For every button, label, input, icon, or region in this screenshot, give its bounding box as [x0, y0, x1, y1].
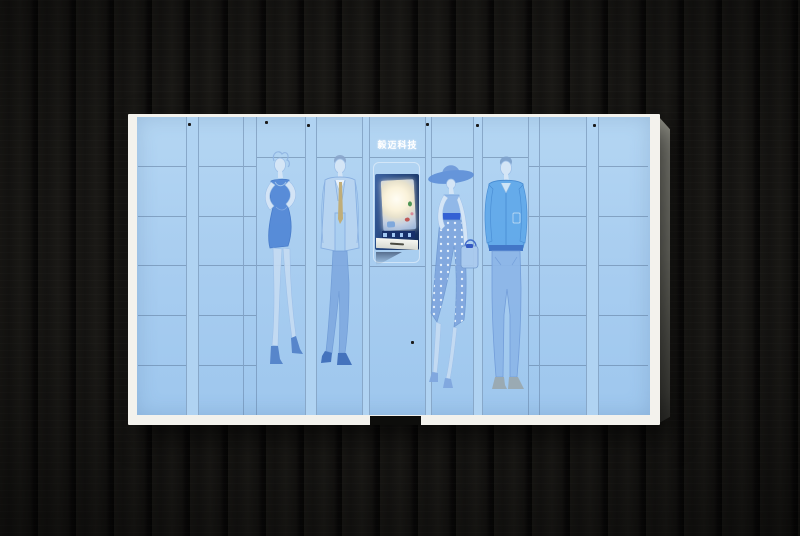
locker-door	[529, 217, 539, 267]
locker-door	[599, 167, 648, 217]
locker-door	[599, 366, 648, 415]
cabinet-face: 毅迈科技	[137, 117, 650, 415]
locker-cabinet: 毅迈科技	[128, 114, 660, 425]
lock-dot	[188, 123, 191, 126]
figure-door-column	[432, 117, 473, 415]
locker-door	[599, 266, 648, 316]
brand-label: 毅迈科技	[377, 138, 417, 151]
screen-content-speck	[405, 217, 410, 221]
figure-door-column	[317, 117, 362, 415]
cabinet-side-panel	[659, 117, 670, 423]
locker-column	[138, 117, 186, 415]
locker-door	[317, 266, 362, 415]
kiosk-base-notch	[370, 416, 421, 425]
locker-door	[599, 316, 648, 366]
locker-door	[540, 217, 586, 267]
kiosk-sill	[376, 238, 418, 250]
locker-door	[599, 117, 648, 167]
locker-door	[199, 117, 243, 167]
locker-door	[540, 117, 586, 167]
locker-door	[244, 316, 256, 366]
locker-door	[199, 167, 243, 217]
locker-door	[199, 217, 243, 267]
locker-door	[540, 167, 586, 217]
locker-door	[483, 158, 528, 266]
locker-door	[317, 158, 362, 266]
locker-door	[529, 316, 539, 366]
lock-dot	[265, 121, 268, 124]
screen-content-speck	[408, 201, 412, 206]
screen-content-speck	[410, 212, 413, 215]
divider-strip	[473, 117, 483, 415]
locker-door	[540, 366, 586, 415]
kiosk-touchscreen	[381, 179, 417, 231]
locker-door	[244, 217, 256, 267]
locker-door	[599, 217, 648, 267]
locker-door	[529, 266, 539, 316]
screen-content-speck	[387, 221, 395, 227]
lock-dot	[476, 124, 479, 127]
locker-door	[138, 366, 186, 415]
locker-door	[257, 266, 305, 415]
locker-door	[244, 366, 256, 415]
locker-door	[540, 266, 586, 316]
divider-strip	[305, 117, 317, 415]
locker-door	[138, 266, 186, 316]
locker-column	[199, 117, 243, 415]
lock-dot	[411, 341, 414, 344]
locker-column-narrow	[243, 117, 257, 415]
kiosk-column: 毅迈科技	[370, 117, 425, 415]
locker-door	[138, 167, 186, 217]
lock-dot	[593, 124, 596, 127]
locker-door	[483, 266, 528, 415]
divider-strip	[586, 117, 599, 415]
locker-door	[244, 266, 256, 316]
locker-door	[138, 217, 186, 267]
divider-strip	[362, 117, 370, 415]
locker-door	[257, 158, 305, 266]
screen-icon-row	[382, 231, 415, 238]
locker-door	[138, 316, 186, 366]
locker-door	[199, 266, 243, 316]
locker-door	[244, 117, 256, 167]
locker-door	[529, 366, 539, 415]
locker-column	[540, 117, 586, 415]
door-seam	[370, 266, 425, 267]
locker-door	[432, 117, 473, 158]
locker-door	[529, 167, 539, 217]
brand-panel: 毅迈科技	[370, 117, 425, 158]
scene: 毅迈科技	[0, 0, 800, 536]
locker-door	[138, 117, 186, 167]
divider-strip	[186, 117, 199, 415]
kiosk-screen-recess	[375, 174, 419, 250]
lock-dot	[307, 124, 310, 127]
locker-door	[529, 117, 539, 167]
locker-door	[540, 316, 586, 366]
locker-column-narrow	[528, 117, 540, 415]
locker-column	[599, 117, 648, 415]
lock-dot	[426, 123, 429, 126]
locker-door	[244, 167, 256, 217]
locker-door	[199, 366, 243, 415]
locker-door	[199, 316, 243, 366]
figure-door-column	[257, 117, 305, 415]
locker-door	[432, 266, 473, 415]
locker-door	[317, 117, 362, 158]
locker-door	[483, 117, 528, 158]
divider-strip	[425, 117, 432, 415]
card-slot	[390, 243, 404, 246]
figure-door-column	[483, 117, 528, 415]
locker-door	[432, 158, 473, 266]
